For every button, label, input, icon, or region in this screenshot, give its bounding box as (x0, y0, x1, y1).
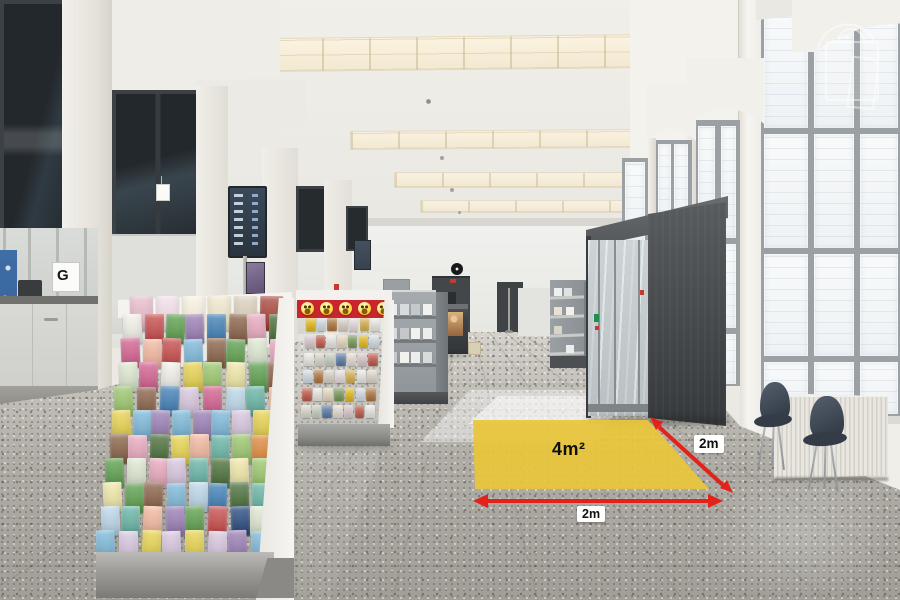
vault-arch (646, 84, 696, 154)
queue-pole (508, 288, 510, 332)
downlight (458, 211, 461, 214)
queue-display-far (354, 240, 371, 270)
window-pane (764, 254, 808, 356)
window-pane (764, 134, 808, 248)
mini-rack-base (298, 424, 390, 446)
chair-leg (808, 440, 819, 490)
counter-cabinets (0, 304, 98, 388)
queue-row-number (234, 226, 243, 229)
shopping-bag-door-icon (812, 10, 898, 130)
station-hall-photo: G (0, 0, 900, 600)
skylight-band (420, 200, 632, 213)
skylight-band (350, 129, 634, 150)
card-rack-base (96, 552, 274, 598)
retail-shelf-side (436, 292, 448, 394)
area-label: 4m² (552, 439, 586, 460)
emoji-banner (297, 300, 391, 318)
window-pane (814, 254, 854, 356)
smiley-emoji-icon (320, 302, 333, 315)
width-dimension-label: 2m (577, 506, 605, 522)
chair (800, 392, 852, 492)
queue-row-counter (252, 234, 258, 237)
queue-row-counter (252, 242, 258, 245)
window-pane (860, 134, 898, 248)
queue-pole-base (505, 330, 513, 333)
skylight-band (274, 34, 650, 72)
wall-clock-icon (451, 263, 463, 275)
queue-row-number (234, 218, 243, 221)
door-sticker-red (595, 326, 599, 330)
smiley-emoji-icon (358, 302, 371, 315)
exit-sign (450, 279, 456, 283)
counter-letter-sign: G (52, 262, 80, 292)
queue-row-counter (252, 226, 258, 229)
queue-row-number (234, 234, 243, 237)
door-frame-line (638, 240, 640, 412)
smiley-emoji-icon (301, 302, 314, 315)
portal-pillar (648, 200, 726, 426)
chair-leg (829, 440, 838, 492)
hanging-sign (156, 184, 170, 201)
magazine-item (554, 307, 562, 315)
chair-leg (757, 422, 766, 468)
chair-leg (777, 422, 785, 470)
counter-top (0, 296, 98, 304)
magazine-item (564, 288, 572, 296)
smiley-emoji-icon (339, 302, 352, 315)
magazine-item (554, 288, 562, 296)
downlight (440, 156, 444, 160)
queue-row-number (234, 242, 243, 245)
portal-shadow (584, 416, 732, 426)
depth-dimension-label: 2m (694, 435, 724, 453)
queue-row-counter (252, 202, 258, 205)
chair-leg (771, 422, 775, 466)
door-frame-line (614, 240, 616, 412)
white-partition (518, 288, 554, 336)
queue-row-counter (252, 194, 258, 197)
queue-display-board (228, 186, 267, 258)
window-pane (814, 134, 854, 248)
magazine-item (554, 326, 562, 334)
window-pane (860, 254, 898, 356)
vault-arch (686, 58, 764, 138)
queue-row-counter (252, 218, 258, 221)
door-sticker-red (640, 290, 644, 295)
chair-seat (754, 412, 793, 428)
counter-poster (446, 312, 463, 336)
queue-row-counter (252, 210, 258, 213)
partition-post (84, 228, 87, 300)
cabinet-handle (44, 318, 58, 321)
chair-seat (803, 430, 848, 447)
queue-row-number (234, 194, 243, 197)
downlight (426, 99, 431, 104)
chair-leg (824, 440, 827, 488)
door-bottom-rail (588, 404, 648, 412)
counter-letter: G (57, 267, 69, 284)
info-screen (246, 262, 265, 294)
skylight-band (394, 172, 636, 188)
parcel-box (468, 342, 481, 355)
mezzanine-window (0, 0, 70, 237)
magazine-item (566, 307, 574, 315)
queue-row-number (234, 202, 243, 205)
magazine-item (566, 345, 574, 353)
door-sticker-green (594, 314, 599, 322)
chair (750, 378, 798, 474)
queue-row-number (234, 210, 243, 213)
pillar (196, 86, 228, 390)
downlight (450, 188, 454, 192)
partition-under-window (112, 234, 196, 306)
mezzanine-window (112, 90, 204, 242)
